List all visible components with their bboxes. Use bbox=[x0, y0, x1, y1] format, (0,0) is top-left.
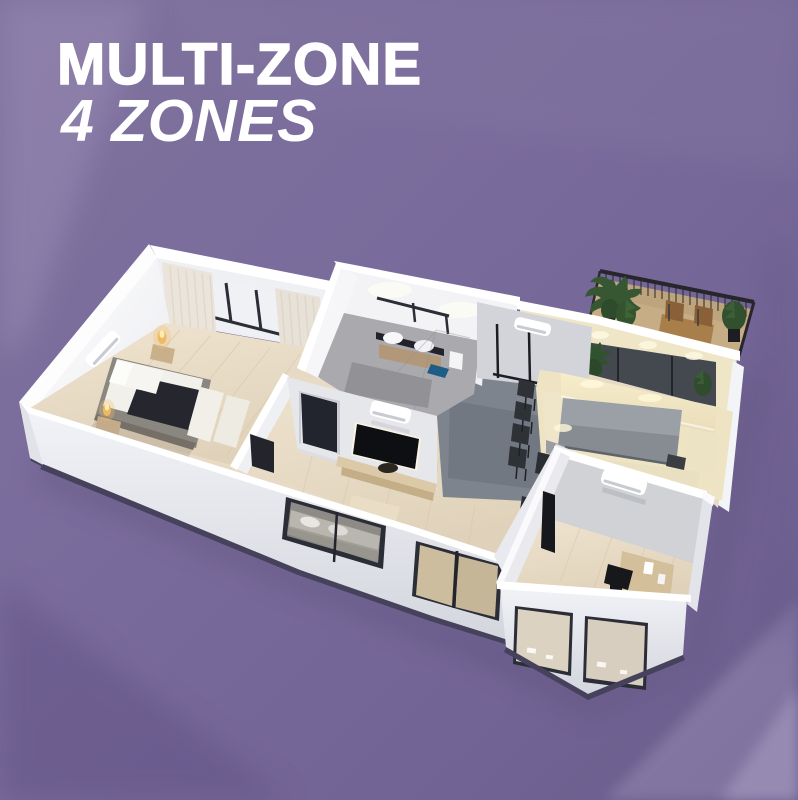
svg-text:4 ZONES: 4 ZONES bbox=[60, 88, 317, 154]
